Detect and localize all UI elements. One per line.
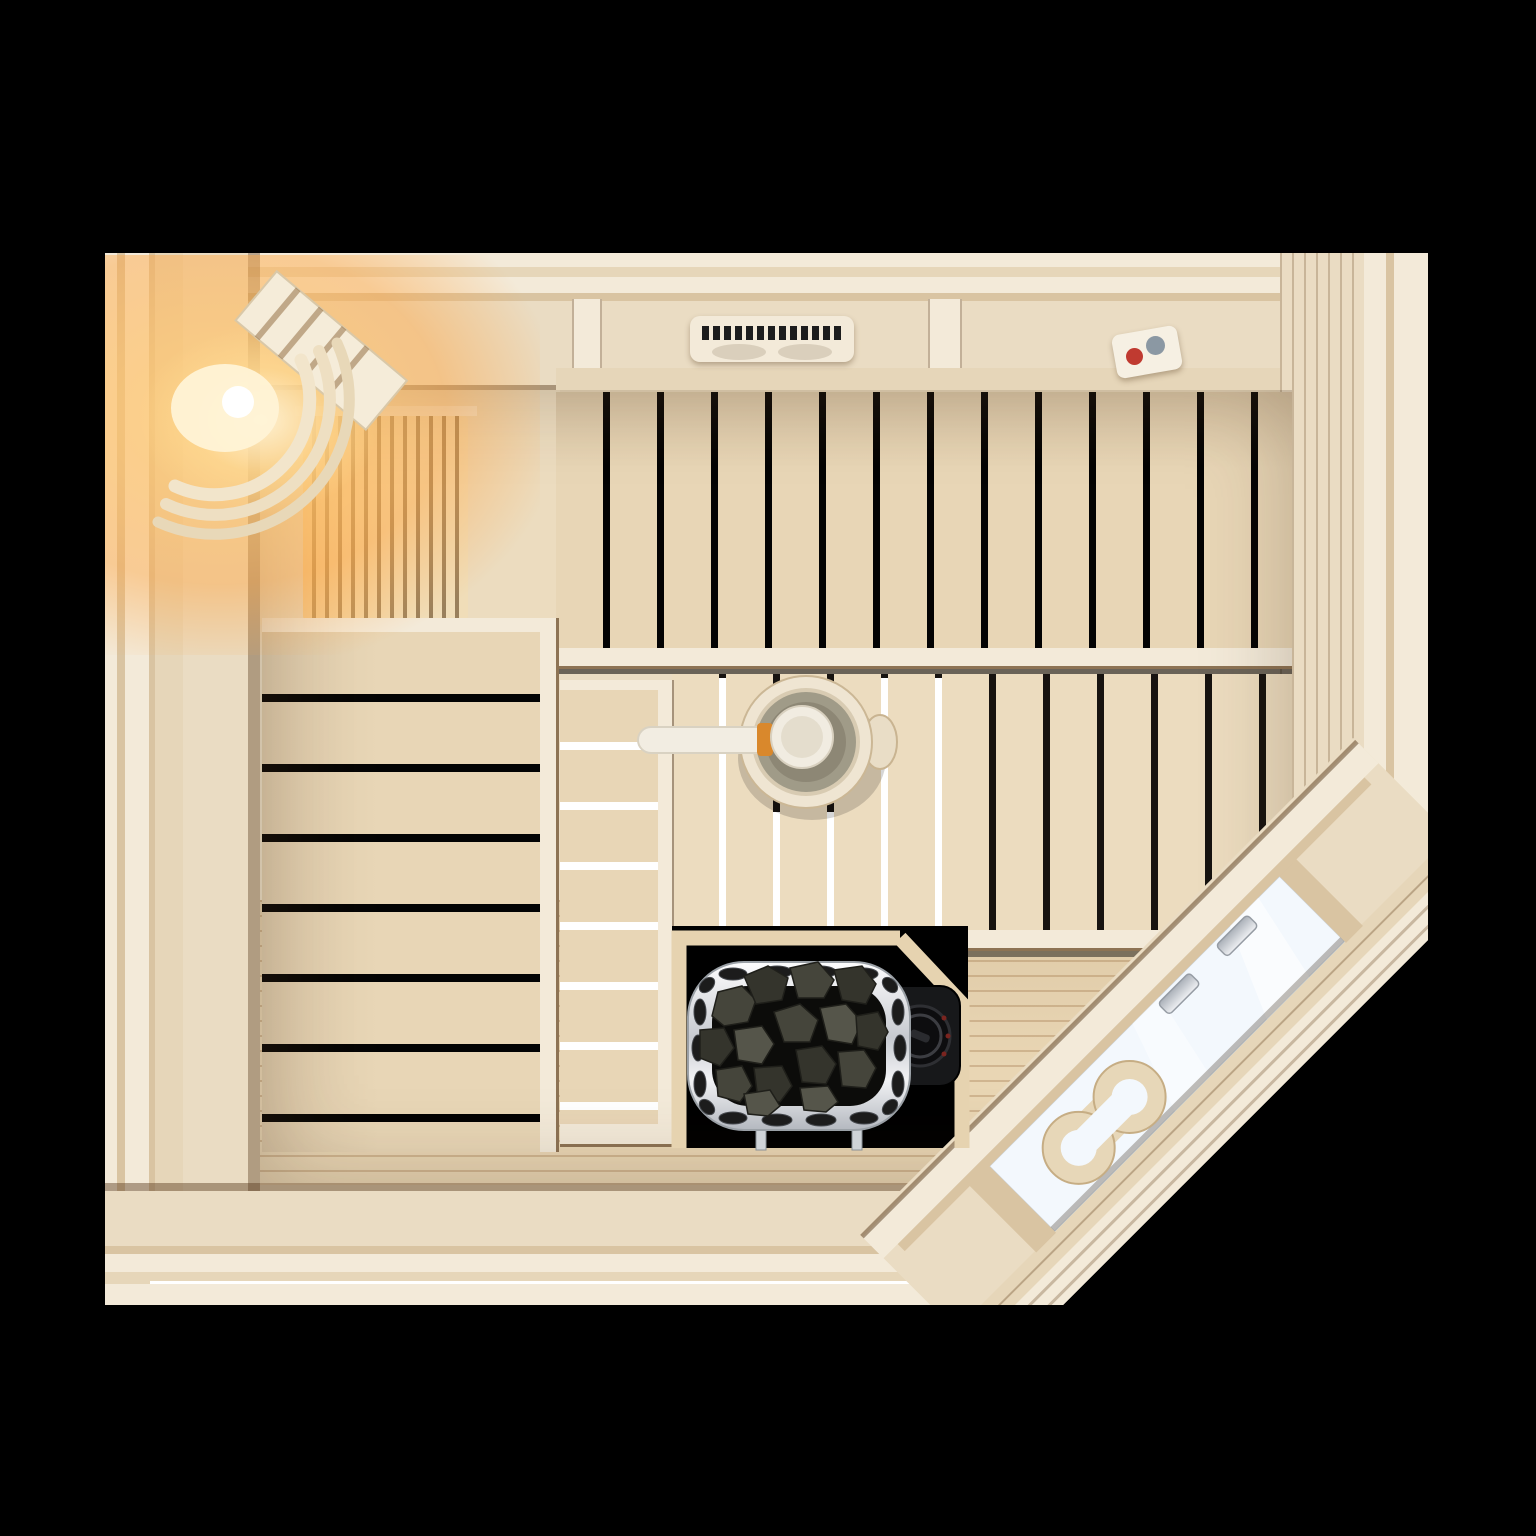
ladle-handle <box>638 727 774 753</box>
scene-objects-layer <box>0 0 1536 1536</box>
sauna-heater <box>688 962 960 1150</box>
light-bulb <box>222 386 254 418</box>
sauna-footprint <box>0 0 1536 1536</box>
ladle-bowl-inner <box>781 716 823 758</box>
corner-light <box>158 271 407 534</box>
sauna-ladle <box>638 706 833 768</box>
sauna-top-view-scene <box>0 0 1536 1536</box>
